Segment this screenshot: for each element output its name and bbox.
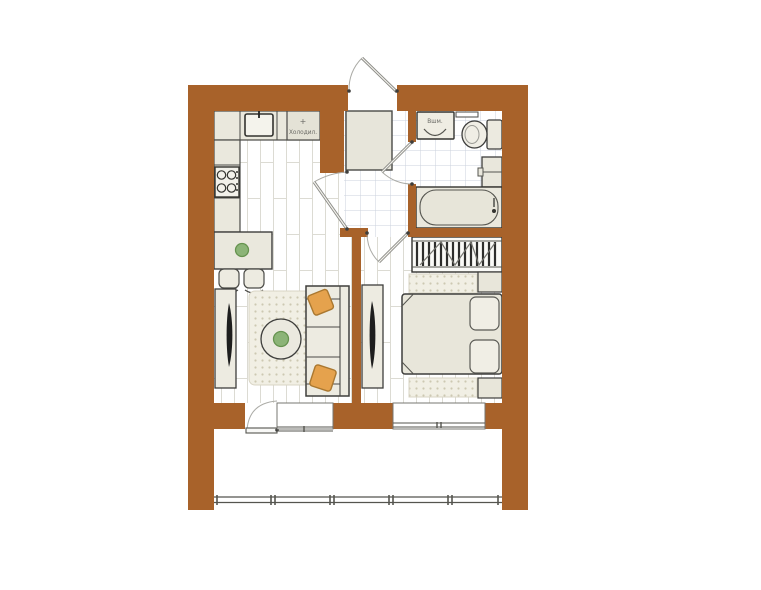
plant (274, 332, 289, 347)
balcony-railing (214, 495, 502, 505)
floor-plan: + Холодил. (0, 0, 761, 590)
refrigerator-symbol: + (300, 117, 307, 126)
balcony-floor (214, 429, 502, 497)
entrance-door (347, 58, 399, 93)
dining-chair (244, 269, 264, 288)
floor-plan-canvas: + Холодил. (0, 0, 761, 590)
bed-pillow (470, 297, 499, 330)
toilet-tank (487, 120, 502, 149)
dining-chair (219, 269, 239, 288)
refrigerator-label: Холодил. (289, 130, 317, 136)
washing-machine-label: Вшм. (427, 119, 443, 125)
bedroom-rug (409, 274, 477, 293)
tv-stand-living (215, 289, 236, 388)
hallway-cabinet (346, 111, 392, 170)
window-bedroom (393, 403, 485, 429)
bedroom-rug (409, 378, 477, 397)
bedside-table (478, 272, 502, 292)
bed-pillow (470, 340, 499, 373)
bedside-table (478, 378, 502, 398)
bathroom-faucet (478, 168, 483, 176)
balcony-door (245, 401, 279, 433)
bathroom-shelf (456, 112, 478, 117)
window-living (277, 403, 333, 432)
plant (236, 244, 249, 257)
toilet (462, 121, 487, 148)
